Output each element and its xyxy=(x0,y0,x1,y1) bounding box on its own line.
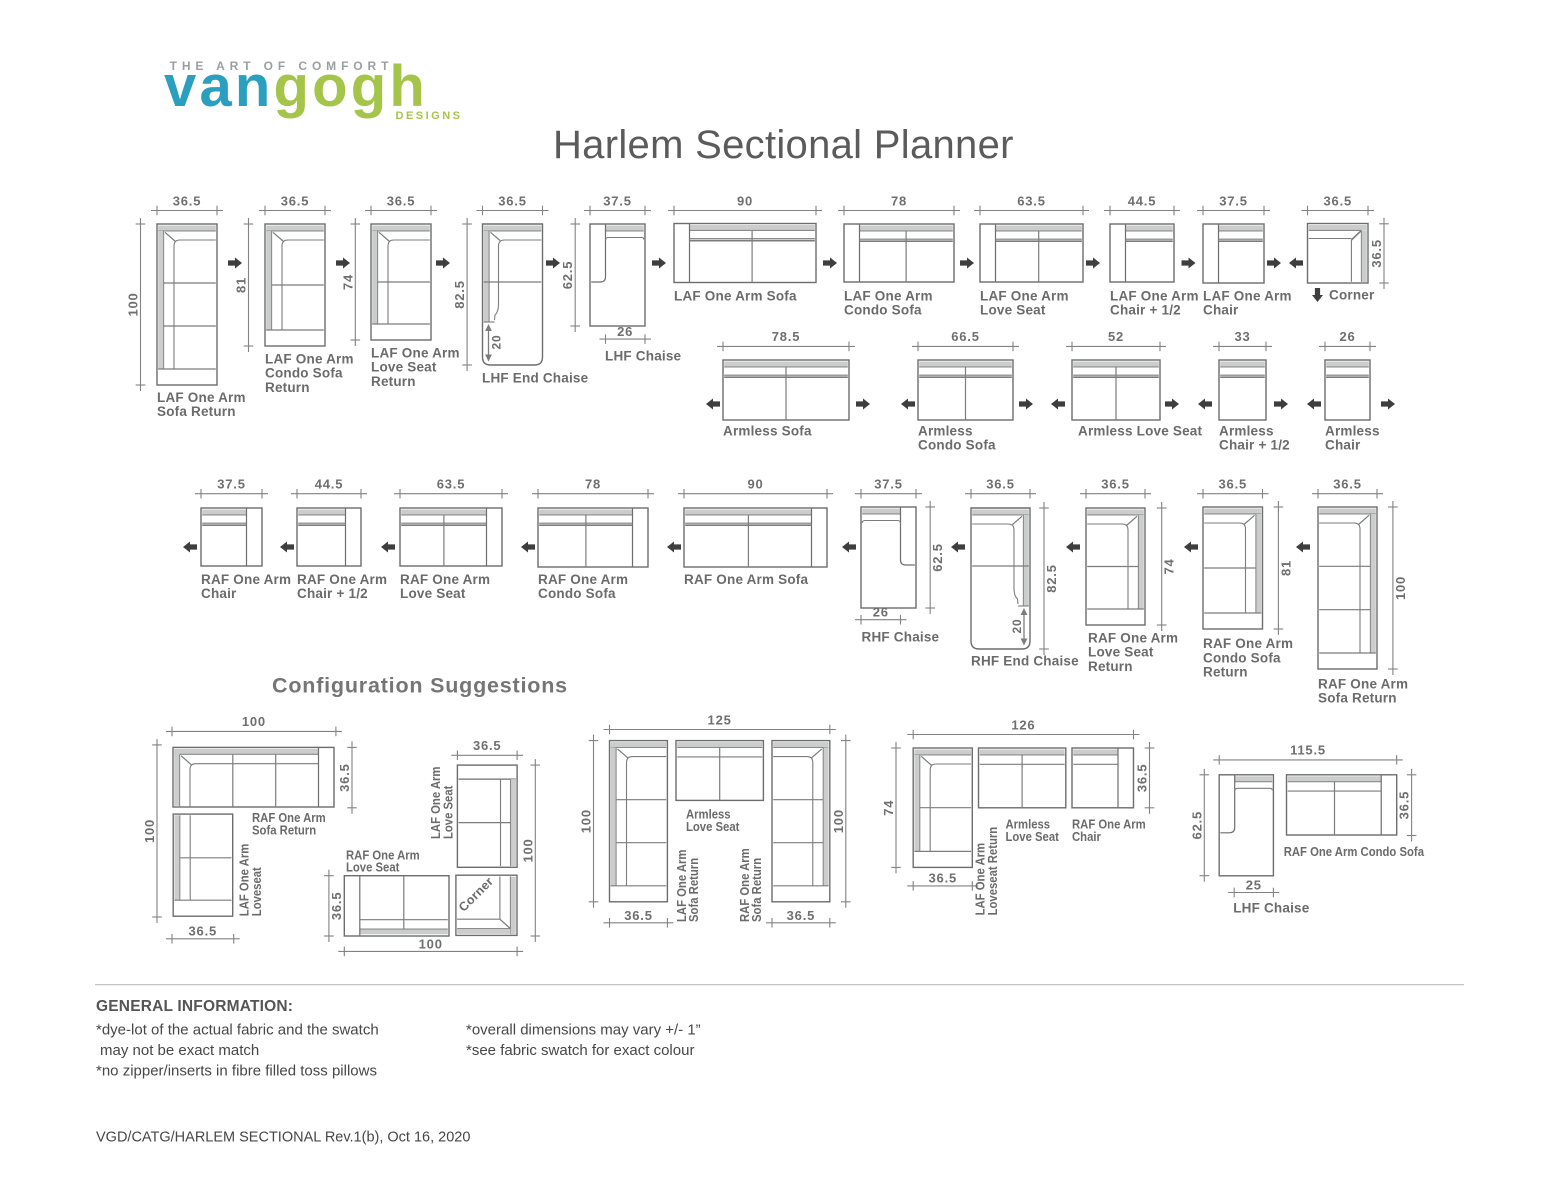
svg-text:LHF Chaise: LHF Chaise xyxy=(605,349,682,364)
svg-text:Return: Return xyxy=(265,380,310,395)
svg-text:Return: Return xyxy=(371,374,416,389)
svg-text:74: 74 xyxy=(1162,558,1177,574)
svg-text:Sofa Return: Sofa Return xyxy=(749,858,764,922)
svg-text:LAF One Arm: LAF One Arm xyxy=(1110,289,1199,304)
svg-text:VGD/CATG/HARLEM SECTIONAL Rev.: VGD/CATG/HARLEM SECTIONAL Rev.1(b), Oct … xyxy=(96,1130,470,1146)
svg-text:Chair: Chair xyxy=(1325,438,1361,453)
svg-text:63.5: 63.5 xyxy=(1017,193,1046,208)
svg-text:RAF One Arm: RAF One Arm xyxy=(1088,630,1178,645)
svg-text:Sofa Return: Sofa Return xyxy=(252,823,316,838)
svg-text:*overall dimensions may vary +: *overall dimensions may vary +/- 1” xyxy=(466,1022,701,1039)
svg-text:90: 90 xyxy=(747,477,763,492)
svg-text:100: 100 xyxy=(520,838,535,862)
svg-text:36.5: 36.5 xyxy=(624,908,653,923)
svg-text:26: 26 xyxy=(1339,329,1355,344)
svg-text:36.5: 36.5 xyxy=(281,193,310,208)
svg-text:*see fabric swatch for exact c: *see fabric swatch for exact colour xyxy=(466,1042,694,1059)
svg-text:Armless: Armless xyxy=(1325,423,1380,438)
svg-text:36.5: 36.5 xyxy=(387,193,416,208)
svg-text:36.5: 36.5 xyxy=(986,477,1015,492)
svg-text:37.5: 37.5 xyxy=(1219,193,1248,208)
svg-text:36.5: 36.5 xyxy=(498,193,527,208)
svg-text:Loveseat Return: Loveseat Return xyxy=(985,827,1000,916)
svg-text:Love Seat: Love Seat xyxy=(346,860,400,875)
svg-text:Return: Return xyxy=(1088,659,1133,674)
svg-text:Armless Sofa: Armless Sofa xyxy=(723,423,812,438)
svg-text:LHF Chaise: LHF Chaise xyxy=(1233,900,1310,915)
svg-text:74: 74 xyxy=(881,800,896,816)
svg-text:Love Seat: Love Seat xyxy=(1088,645,1154,660)
svg-text:Configuration Suggestions: Configuration Suggestions xyxy=(272,674,568,698)
svg-text:36.5: 36.5 xyxy=(1324,193,1353,208)
svg-text:Sofa Return: Sofa Return xyxy=(157,404,236,419)
svg-text:RHF Chaise: RHF Chaise xyxy=(862,630,940,645)
svg-text:62.5: 62.5 xyxy=(930,543,945,572)
svg-text:LAF One Arm: LAF One Arm xyxy=(844,289,933,304)
svg-text:Chair + 1/2: Chair + 1/2 xyxy=(1110,303,1181,318)
svg-text:20: 20 xyxy=(1010,619,1024,634)
svg-text:78.5: 78.5 xyxy=(772,329,801,344)
svg-text:Chair: Chair xyxy=(1072,829,1101,844)
svg-text:Loveseat: Loveseat xyxy=(249,867,264,917)
svg-text:Love Seat: Love Seat xyxy=(980,303,1046,318)
svg-text:Chair: Chair xyxy=(1203,303,1239,318)
svg-text:Armless Love Seat: Armless Love Seat xyxy=(1078,423,1203,438)
svg-text:Love Seat: Love Seat xyxy=(441,785,456,839)
svg-text:62.5: 62.5 xyxy=(1189,811,1204,840)
svg-text:Chair: Chair xyxy=(201,586,237,601)
svg-text:36.5: 36.5 xyxy=(173,193,202,208)
svg-text:25: 25 xyxy=(1246,878,1262,893)
svg-text:RAF One Arm: RAF One Arm xyxy=(201,572,291,587)
svg-text:100: 100 xyxy=(126,292,141,316)
svg-text:82.5: 82.5 xyxy=(1044,564,1059,593)
svg-text:100: 100 xyxy=(142,819,157,843)
svg-text:126: 126 xyxy=(1011,717,1035,732)
svg-text:may not be exact match: may not be exact match xyxy=(100,1042,259,1059)
svg-text:36.5: 36.5 xyxy=(1135,764,1150,793)
svg-text:Return: Return xyxy=(1203,665,1248,680)
svg-text:26: 26 xyxy=(617,324,633,339)
svg-text:115.5: 115.5 xyxy=(1290,743,1326,758)
svg-text:63.5: 63.5 xyxy=(437,477,466,492)
svg-text:Condo Sofa: Condo Sofa xyxy=(265,366,343,381)
svg-text:RAF One Arm: RAF One Arm xyxy=(538,572,628,587)
svg-text:*dye-lot of the actual fabric: *dye-lot of the actual fabric and the sw… xyxy=(96,1022,379,1039)
svg-text:RHF End Chaise: RHF End Chaise xyxy=(971,654,1079,669)
svg-text:LAF One Arm: LAF One Arm xyxy=(157,390,246,405)
svg-text:78: 78 xyxy=(585,477,601,492)
svg-text:36.5: 36.5 xyxy=(1219,477,1248,492)
svg-text:RAF One Arm Condo Sofa: RAF One Arm Condo Sofa xyxy=(1284,844,1425,859)
svg-text:RAF One Arm: RAF One Arm xyxy=(297,572,387,587)
svg-text:vangogh: vangogh xyxy=(164,54,428,119)
svg-text:LAF One Arm: LAF One Arm xyxy=(980,289,1069,304)
svg-text:Condo Sofa: Condo Sofa xyxy=(918,438,996,453)
svg-text:LAF One Arm: LAF One Arm xyxy=(1203,289,1292,304)
svg-text:Corner: Corner xyxy=(1329,288,1375,303)
svg-text:Armless: Armless xyxy=(918,423,973,438)
svg-text:Chair + 1/2: Chair + 1/2 xyxy=(1219,438,1290,453)
svg-text:100: 100 xyxy=(1393,576,1408,600)
svg-text:44.5: 44.5 xyxy=(315,477,344,492)
svg-text:36.5: 36.5 xyxy=(473,738,502,753)
svg-text:36.5: 36.5 xyxy=(1397,791,1412,820)
svg-text:Sofa Return: Sofa Return xyxy=(686,858,701,922)
svg-text:36.5: 36.5 xyxy=(329,892,344,921)
svg-text:100: 100 xyxy=(831,809,846,833)
svg-text:LAF One Arm: LAF One Arm xyxy=(371,346,460,361)
svg-text:LAF One Arm: LAF One Arm xyxy=(265,352,354,367)
svg-text:Condo Sofa: Condo Sofa xyxy=(844,303,922,318)
svg-text:RAF One Arm: RAF One Arm xyxy=(400,572,490,587)
svg-text:Condo Sofa: Condo Sofa xyxy=(1203,650,1281,665)
svg-text:Love Seat: Love Seat xyxy=(1006,829,1060,844)
svg-text:RAF One Arm Sofa: RAF One Arm Sofa xyxy=(684,572,809,587)
svg-text:Armless: Armless xyxy=(1219,423,1274,438)
svg-text:26: 26 xyxy=(873,605,889,620)
svg-text:66.5: 66.5 xyxy=(951,329,980,344)
svg-text:52: 52 xyxy=(1108,329,1124,344)
svg-text:37.5: 37.5 xyxy=(603,193,632,208)
svg-text:100: 100 xyxy=(419,936,443,951)
svg-text:GENERAL INFORMATION:: GENERAL INFORMATION: xyxy=(96,998,293,1015)
svg-text:Love Seat: Love Seat xyxy=(400,586,466,601)
svg-text:81: 81 xyxy=(1278,560,1293,576)
svg-text:36.5: 36.5 xyxy=(787,908,816,923)
svg-text:78: 78 xyxy=(891,193,907,208)
svg-text:Condo Sofa: Condo Sofa xyxy=(538,586,616,601)
svg-text:RAF One Arm: RAF One Arm xyxy=(1203,636,1293,651)
svg-text:Love Seat: Love Seat xyxy=(686,819,740,834)
svg-text:Sofa Return: Sofa Return xyxy=(1318,691,1397,706)
svg-text:37.5: 37.5 xyxy=(874,477,903,492)
svg-text:33: 33 xyxy=(1234,329,1250,344)
svg-text:37.5: 37.5 xyxy=(217,477,246,492)
svg-text:100: 100 xyxy=(579,809,594,833)
svg-text:36.5: 36.5 xyxy=(337,763,352,792)
svg-text:Love Seat: Love Seat xyxy=(371,360,437,375)
svg-text:82.5: 82.5 xyxy=(452,280,467,309)
svg-text:100: 100 xyxy=(242,714,266,729)
svg-text:36.5: 36.5 xyxy=(189,923,218,938)
svg-text:36.5: 36.5 xyxy=(1333,477,1362,492)
svg-text:44.5: 44.5 xyxy=(1128,193,1157,208)
svg-text:20: 20 xyxy=(490,335,504,350)
svg-text:74: 74 xyxy=(340,274,355,290)
svg-text:LAF One Arm Sofa: LAF One Arm Sofa xyxy=(674,289,797,304)
svg-text:DESIGNS: DESIGNS xyxy=(396,110,463,122)
svg-text:90: 90 xyxy=(737,193,753,208)
svg-text:36.5: 36.5 xyxy=(929,870,958,885)
svg-text:81: 81 xyxy=(234,277,249,293)
svg-text:Chair + 1/2: Chair + 1/2 xyxy=(297,586,368,601)
svg-text:LHF End Chaise: LHF End Chaise xyxy=(482,371,589,386)
svg-text:Harlem Sectional Planner: Harlem Sectional Planner xyxy=(553,123,1014,167)
svg-text:125: 125 xyxy=(708,712,732,727)
svg-text:36.5: 36.5 xyxy=(1101,477,1130,492)
svg-text:*no zipper/inserts in fibre fi: *no zipper/inserts in fibre filled toss … xyxy=(96,1063,377,1080)
svg-text:RAF One Arm: RAF One Arm xyxy=(1318,676,1408,691)
svg-text:62.5: 62.5 xyxy=(560,261,575,290)
svg-text:36.5: 36.5 xyxy=(1369,239,1384,268)
